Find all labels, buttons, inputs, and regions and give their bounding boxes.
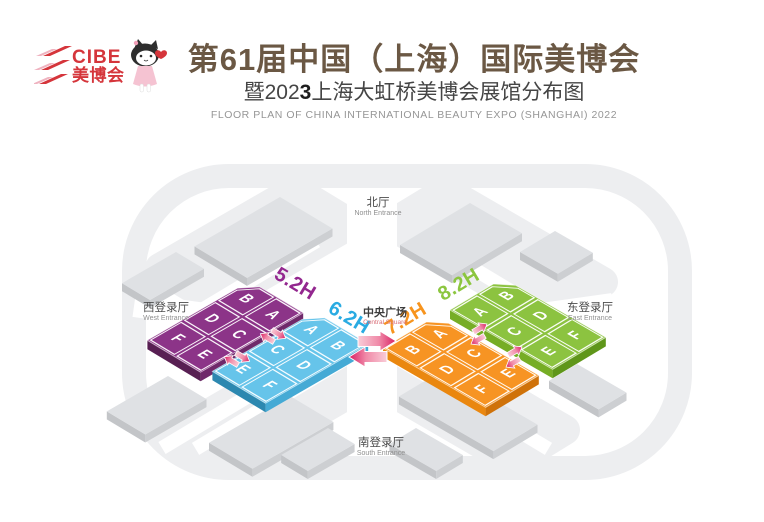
entrance-south-zh: 南登录厅: [358, 435, 404, 449]
logo-brand-text: CIBE: [72, 47, 121, 68]
page-subtitle-en: FLOOR PLAN OF CHINA INTERNATIONAL BEAUTY…: [158, 109, 670, 121]
entrance-west-label: 西登录厅 West Entrance: [143, 300, 189, 322]
entrance-west-en: West Entrance: [143, 315, 189, 322]
logo-brand-cn-text: 美博会: [72, 65, 125, 85]
entrance-south-label: 南登录厅 South Entrance: [357, 435, 405, 457]
page-title: 第61届中国（上海）国际美博会: [158, 42, 670, 78]
entrance-east-label: 东登录厅 East Entrance: [567, 300, 613, 322]
subtitle-prefix: 暨202: [244, 81, 300, 104]
page-subtitle: 暨2023上海大虹桥美博会展馆分布图: [158, 80, 670, 105]
subtitle-year-digit: 3: [300, 81, 312, 104]
header: CIBE 美博会: [0, 0, 764, 145]
entrance-east-en: East Entrance: [568, 315, 612, 322]
entrance-north-en: North Entrance: [354, 210, 401, 217]
central-square-zh: 中央广场: [363, 305, 407, 319]
subtitle-suffix: 上海大虹桥美博会展馆分布图: [311, 81, 584, 104]
entrance-east-zh: 东登录厅: [567, 300, 613, 314]
central-square-en: Central Square: [363, 319, 407, 326]
title-block: 第61届中国（上海）国际美博会 暨2023上海大虹桥美博会展馆分布图 FLOOR…: [158, 42, 670, 121]
page: CIBE 美博会: [0, 0, 764, 522]
central-square-label: 中央广场 Central Square: [363, 305, 407, 326]
entrance-north-zh: 北厅: [367, 196, 390, 209]
entrance-west-zh: 西登录厅: [143, 300, 189, 314]
entrance-south-en: South Entrance: [357, 450, 405, 457]
logo-stripes-icon: [34, 46, 72, 84]
